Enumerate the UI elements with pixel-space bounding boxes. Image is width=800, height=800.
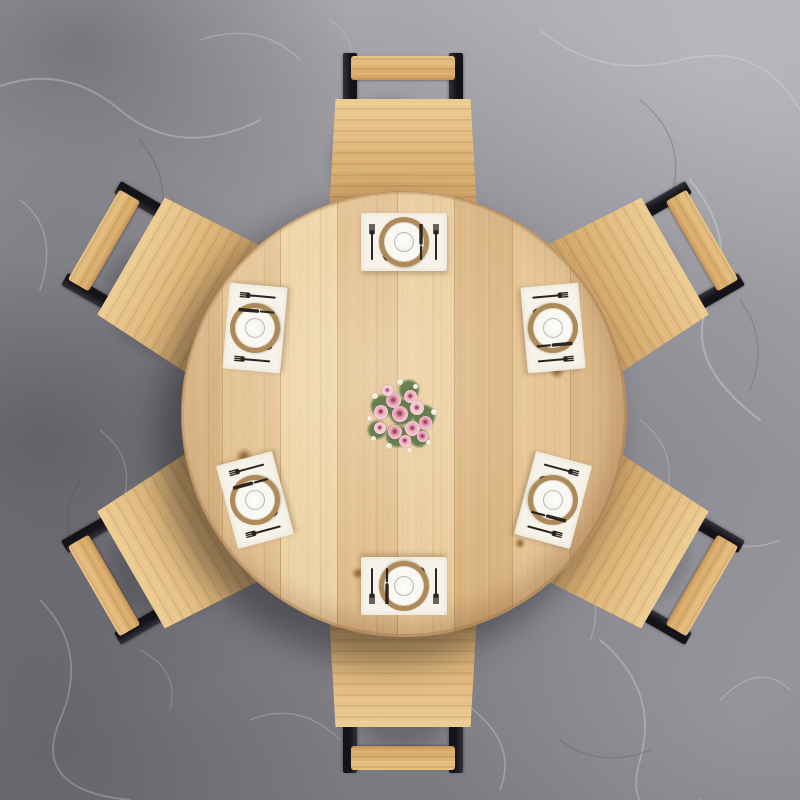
flower-bud bbox=[372, 393, 378, 399]
fork bbox=[366, 222, 378, 262]
dining-table bbox=[181, 191, 627, 637]
rose-flower bbox=[392, 406, 408, 422]
rose-flower bbox=[419, 416, 432, 429]
rose-flower bbox=[374, 405, 388, 419]
place-setting bbox=[361, 213, 447, 271]
plate-center bbox=[243, 488, 267, 512]
flower-bud bbox=[397, 379, 403, 385]
chair-backrest-bar bbox=[351, 56, 455, 80]
cutlery-right bbox=[415, 222, 442, 262]
rose-flower bbox=[374, 422, 386, 434]
plate-center bbox=[394, 232, 414, 252]
flower-bud bbox=[386, 443, 392, 449]
flower-bud bbox=[431, 409, 437, 415]
rose-flower bbox=[382, 385, 393, 396]
place-setting bbox=[520, 283, 585, 374]
place-setting bbox=[216, 451, 294, 549]
fork bbox=[366, 566, 378, 606]
flower-bud bbox=[367, 416, 372, 421]
cutlery-right bbox=[534, 337, 576, 367]
plate-center bbox=[244, 317, 266, 339]
knife bbox=[415, 222, 427, 262]
flower-bud bbox=[426, 440, 431, 445]
fork bbox=[430, 566, 442, 606]
wood-knot bbox=[514, 538, 526, 550]
knife bbox=[381, 566, 393, 606]
scene bbox=[0, 0, 800, 800]
flower-centerpiece bbox=[352, 365, 452, 465]
flower-bud bbox=[413, 384, 418, 389]
rose-flower bbox=[410, 401, 424, 415]
rose-flower bbox=[399, 435, 411, 447]
knife bbox=[534, 337, 575, 352]
flower-bud bbox=[371, 436, 376, 441]
plate-center bbox=[542, 317, 564, 339]
cutlery-right bbox=[236, 288, 278, 318]
fork bbox=[530, 288, 571, 303]
place-setting bbox=[361, 557, 447, 615]
fork bbox=[430, 222, 442, 262]
chair-backrest-bar bbox=[351, 746, 455, 770]
plate-center bbox=[394, 576, 414, 596]
place-setting bbox=[514, 451, 592, 549]
flower-bud bbox=[407, 448, 412, 453]
place-setting bbox=[222, 283, 287, 374]
fork bbox=[237, 288, 278, 303]
cutlery-right bbox=[366, 566, 393, 606]
